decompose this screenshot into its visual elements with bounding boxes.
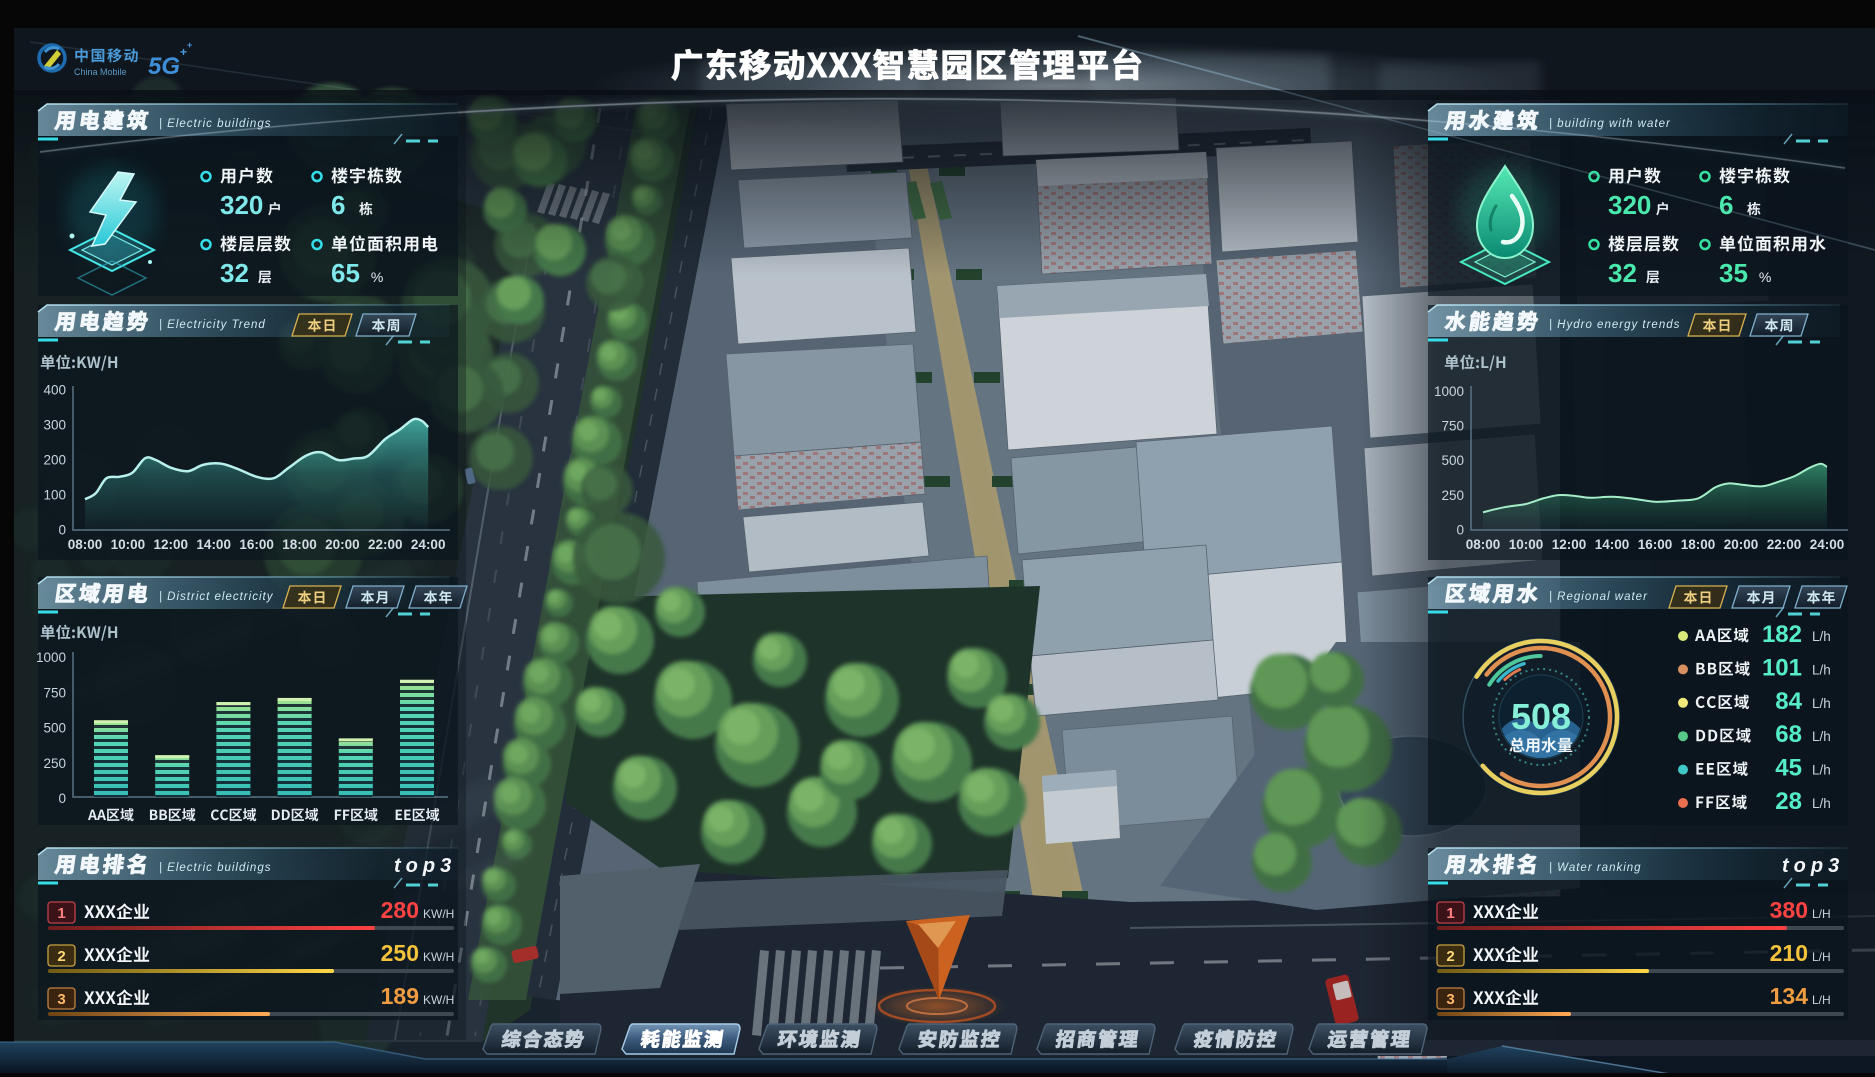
svg-text:380: 380 xyxy=(1770,897,1808,923)
svg-text:200: 200 xyxy=(43,453,66,468)
svg-text:500: 500 xyxy=(43,721,66,736)
svg-text:| Electricity Trend: | Electricity Trend xyxy=(159,319,266,331)
svg-text:182: 182 xyxy=(1762,621,1802,648)
svg-text:| Water ranking: | Water ranking xyxy=(1549,862,1642,874)
svg-text:6: 6 xyxy=(1719,190,1733,220)
svg-text:| Hydro energy trends: | Hydro energy trends xyxy=(1549,319,1680,331)
svg-text:0: 0 xyxy=(1456,522,1464,537)
svg-text:12:00: 12:00 xyxy=(154,537,189,552)
svg-text:08:00: 08:00 xyxy=(68,537,103,552)
svg-text:| building with water: | building with water xyxy=(1549,118,1671,130)
svg-text:500: 500 xyxy=(1441,453,1464,468)
svg-text:400: 400 xyxy=(43,383,66,398)
svg-text:20:00: 20:00 xyxy=(1724,537,1759,552)
svg-text:top3: top3 xyxy=(1782,855,1844,877)
svg-text:China Mobile: China Mobile xyxy=(74,67,127,77)
svg-text:6: 6 xyxy=(331,190,345,220)
svg-text:L/h: L/h xyxy=(1812,629,1831,644)
svg-text:L/h: L/h xyxy=(1812,763,1831,778)
svg-text:L/h: L/h xyxy=(1812,696,1831,711)
svg-text:28: 28 xyxy=(1775,788,1802,815)
svg-text:14:00: 14:00 xyxy=(196,537,231,552)
svg-text:2: 2 xyxy=(1446,948,1454,965)
svg-text:1: 1 xyxy=(57,905,65,922)
svg-text:250: 250 xyxy=(1441,488,1464,503)
svg-text:10:00: 10:00 xyxy=(111,537,146,552)
svg-text:18:00: 18:00 xyxy=(282,537,317,552)
svg-text:320: 320 xyxy=(1608,190,1651,220)
svg-text:L/h: L/h xyxy=(1812,662,1831,677)
svg-text:84: 84 xyxy=(1775,688,1802,715)
svg-text:14:00: 14:00 xyxy=(1595,537,1630,552)
svg-text:KW/H: KW/H xyxy=(423,993,454,1007)
svg-text:20:00: 20:00 xyxy=(325,537,360,552)
svg-text:KW/H: KW/H xyxy=(423,907,454,921)
svg-text:+: + xyxy=(187,40,192,50)
svg-text:KW/H: KW/H xyxy=(423,950,454,964)
svg-text:750: 750 xyxy=(43,685,66,700)
svg-text:%: % xyxy=(1759,269,1771,285)
svg-text:%: % xyxy=(371,269,383,285)
svg-text:189: 189 xyxy=(381,983,419,1009)
svg-text:L/h: L/h xyxy=(1812,729,1831,744)
svg-text:top3: top3 xyxy=(394,855,456,877)
svg-text:22:00: 22:00 xyxy=(368,537,403,552)
svg-text:24:00: 24:00 xyxy=(1810,537,1845,552)
svg-text:22:00: 22:00 xyxy=(1767,537,1802,552)
svg-text:18:00: 18:00 xyxy=(1681,537,1716,552)
svg-text:1: 1 xyxy=(1446,905,1454,922)
svg-text:68: 68 xyxy=(1775,721,1802,748)
svg-text:L/H: L/H xyxy=(1812,907,1831,921)
svg-text:250: 250 xyxy=(381,940,419,966)
svg-text:| District electricity: | District electricity xyxy=(159,591,274,603)
svg-text:100: 100 xyxy=(43,488,66,503)
svg-text:| Electric buildings: | Electric buildings xyxy=(159,862,271,874)
svg-text:+: + xyxy=(180,45,187,59)
svg-text:210: 210 xyxy=(1770,940,1808,966)
svg-text:101: 101 xyxy=(1762,654,1802,681)
svg-text:320: 320 xyxy=(220,190,263,220)
svg-text:24:00: 24:00 xyxy=(411,537,446,552)
svg-text:0: 0 xyxy=(58,523,66,538)
svg-text:134: 134 xyxy=(1770,983,1809,1009)
svg-text:L/h: L/h xyxy=(1812,796,1831,811)
svg-text:0: 0 xyxy=(58,791,66,806)
svg-text:08:00: 08:00 xyxy=(1466,537,1501,552)
svg-text:3: 3 xyxy=(1446,991,1454,1008)
svg-text:10:00: 10:00 xyxy=(1509,537,1544,552)
svg-text:1000: 1000 xyxy=(1434,384,1464,399)
svg-text:1000: 1000 xyxy=(36,650,66,665)
svg-text:35: 35 xyxy=(1719,258,1748,288)
svg-text:750: 750 xyxy=(1441,419,1464,434)
svg-text:12:00: 12:00 xyxy=(1552,537,1587,552)
svg-text:3: 3 xyxy=(57,991,65,1008)
svg-text:280: 280 xyxy=(381,897,419,923)
svg-text:508: 508 xyxy=(1511,696,1571,737)
svg-text:L/H: L/H xyxy=(1812,993,1831,1007)
svg-text:250: 250 xyxy=(43,756,66,771)
svg-text:| Regional water: | Regional water xyxy=(1549,591,1648,603)
svg-text:L/H: L/H xyxy=(1812,950,1831,964)
svg-text:32: 32 xyxy=(220,258,249,288)
svg-text:16:00: 16:00 xyxy=(239,537,274,552)
svg-text:16:00: 16:00 xyxy=(1638,537,1673,552)
svg-text:32: 32 xyxy=(1608,258,1637,288)
svg-text:2: 2 xyxy=(57,948,65,965)
svg-text:65: 65 xyxy=(331,258,360,288)
svg-text:45: 45 xyxy=(1775,755,1802,782)
svg-text:5G: 5G xyxy=(148,53,180,80)
svg-text:300: 300 xyxy=(43,418,66,433)
